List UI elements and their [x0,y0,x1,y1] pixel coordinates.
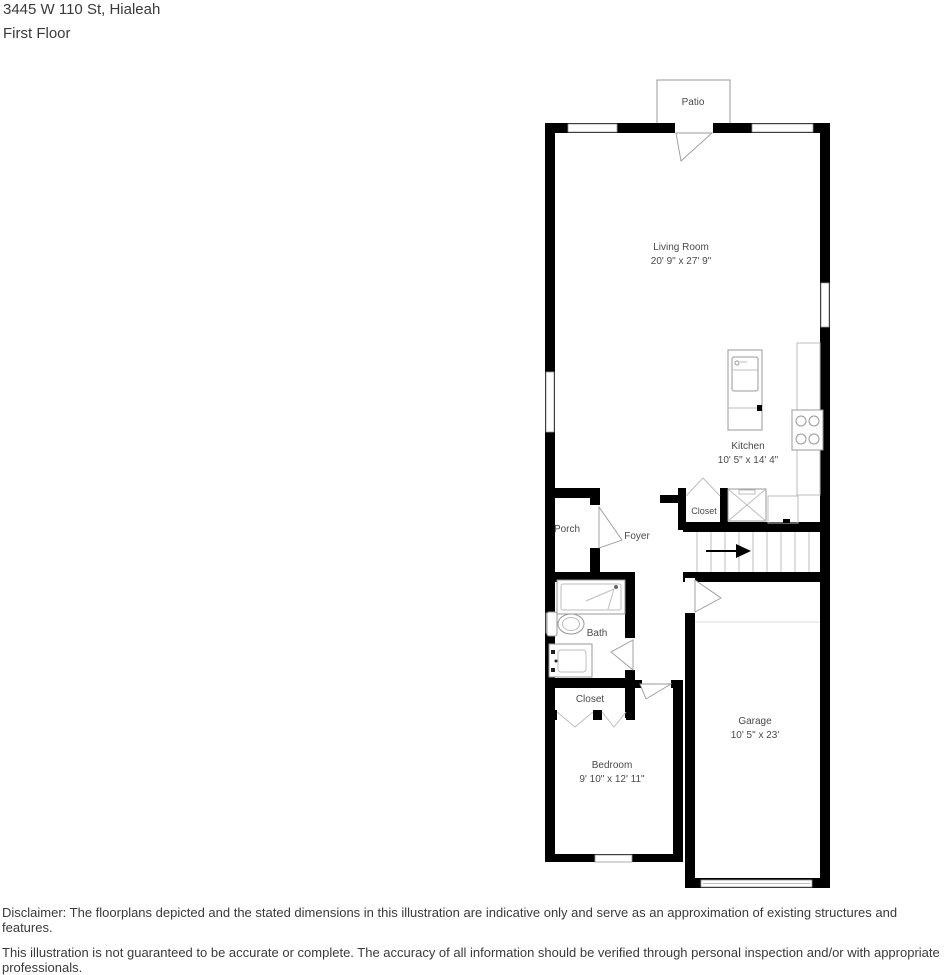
counter-landing [768,496,798,523]
room-dims-living-room: 20' 9" x 27' 9" [651,255,711,269]
closet-bifold-door-right [602,712,626,727]
room-label-foyer: Foyer [624,530,650,544]
patio-door-swing [676,133,712,161]
wall-closet-bottom-2 [593,710,602,720]
kitchen-closet-bifold-door [686,478,720,496]
shower-head [614,585,618,589]
window-top-right [752,124,813,132]
wall-stairs-bottom [683,572,830,582]
stairs-direction-arrow [706,544,751,558]
disclaimer-line-2: This illustration is not guaranteed to b… [2,945,950,975]
disclaimer-line-1: Disclaimer: The floorplans depicted and … [2,905,950,935]
room-label-garage: Garage 10' 5" x 23' [731,715,780,743]
garage-entry-door-opening [685,578,695,613]
wall-bath-closet-divider [545,678,635,688]
room-label-kitchen: Kitchen 10' 5" x 14' 4" [718,440,778,468]
room-label-kitchen-closet: Closet [691,504,717,518]
floorplan: Patio Living Room 20' 9" x 27' 9" Kitche… [0,0,950,946]
wall-bedroom-right [673,680,683,862]
wall-closet-bottom-3 [626,710,635,720]
room-dims-bedroom: 9' 10" x 12' 11" [579,773,644,787]
stove-cooktop [792,410,823,450]
bathtub [557,580,625,614]
wall-right [820,123,830,888]
garage-entry-door-swing [695,580,721,612]
wall-garage-left [685,575,695,888]
closet-bifold-door-left [557,712,593,727]
room-dims-garage: 10' 5" x 23' [731,729,780,743]
wall-kitchen-closet-right [720,488,728,530]
room-label-patio: Patio [682,96,705,110]
entry-door-opening [590,505,600,548]
room-label-bedroom: Bedroom 9' 10" x 12' 11" [579,759,644,787]
window-right-wall [821,283,829,327]
window-left-wall [546,372,554,432]
floorplan-svg [0,0,950,946]
stairs [697,532,809,572]
entry-door-swing [599,507,622,548]
room-label-porch: Porch [554,523,580,537]
island-tick [757,405,762,411]
wall-stairs-top [683,522,830,532]
room-label-bath: Bath [587,627,608,641]
window-top-left [568,124,617,132]
patio-door-opening [675,123,713,133]
room-label-bedroom-closet: Closet [576,693,604,707]
wall-kitchen-closet-left [678,488,686,530]
wall-kitchen-closet-stub [660,495,678,503]
wall-closet-bottom-1 [545,710,557,720]
window-bedroom [595,855,632,862]
counter-tick [783,519,790,523]
kitchen-fixtures [728,343,823,523]
toilet [547,612,584,636]
vanity-sink [549,644,592,677]
bedroom-door-swing [640,684,671,699]
room-label-living-room: Living Room 20' 9" x 27' 9" [651,241,711,269]
washer-dryer-box [728,489,766,521]
disclaimer: Disclaimer: The floorplans depicted and … [2,905,950,975]
bath-door-swing [611,640,633,670]
room-dims-kitchen: 10' 5" x 14' 4" [718,454,778,468]
